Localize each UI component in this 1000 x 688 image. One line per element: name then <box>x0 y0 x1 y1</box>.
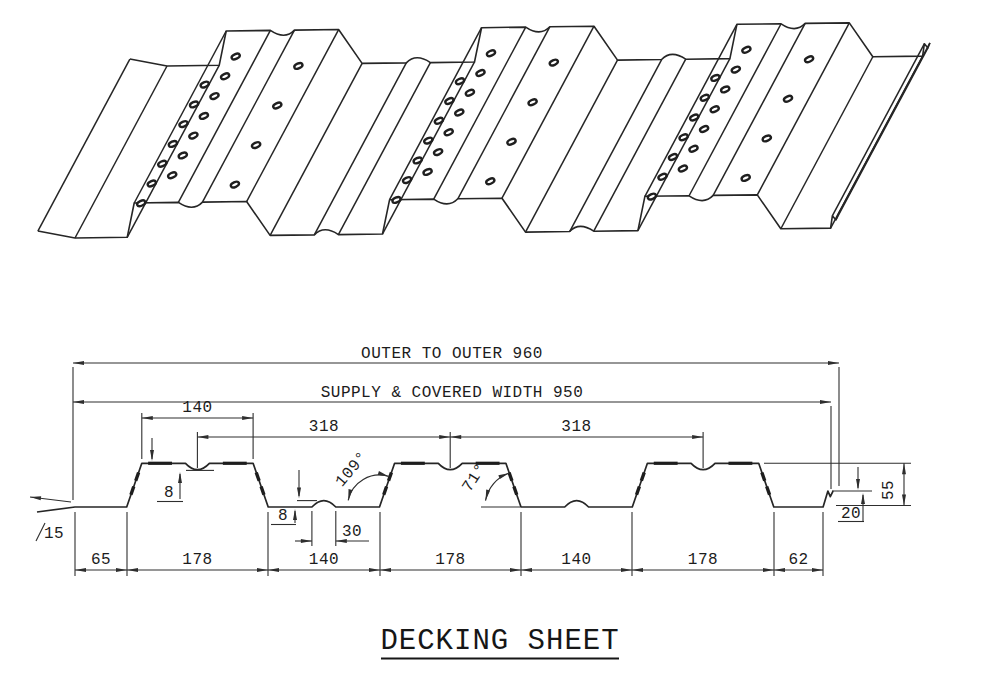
dim-chain-62: 62 <box>788 551 808 569</box>
dim-rib-top-140: 140 <box>182 399 212 417</box>
dim-chain-178b: 178 <box>435 551 465 569</box>
dim-chain-140a: 140 <box>309 551 339 569</box>
drawing-title-block: DECKING SHEET <box>380 625 619 659</box>
dim-outer-to-outer: OUTER TO OUTER 960 <box>361 345 543 363</box>
dim-supply-covered-width: SUPPLY & COVERED WIDTH 950 <box>321 384 584 402</box>
dim-depth-55: 55 <box>880 480 898 500</box>
dim-pitch-318-a: 318 <box>309 418 339 436</box>
dim-chain-178a: 178 <box>182 551 212 569</box>
drawing-title: DECKING SHEET <box>380 625 619 658</box>
cross-section-profile <box>37 463 833 512</box>
dim-chain-140b: 140 <box>561 551 591 569</box>
dim-pitch-318-b: 318 <box>561 418 591 436</box>
dim-dimple-depth-8: 8 <box>164 484 174 502</box>
dim-chain-178c: 178 <box>688 551 718 569</box>
drawing-sheet: OUTER TO OUTER 960 SUPPLY & COVERED WIDT… <box>0 0 1000 688</box>
dim-lip-right-20: 20 <box>841 505 861 523</box>
dim-lip-left-15: 15 <box>44 525 64 543</box>
dim-angle-109: 109° <box>332 448 372 491</box>
dim-chain-65: 65 <box>91 551 111 569</box>
dimension-labels: OUTER TO OUTER 960 SUPPLY & COVERED WIDT… <box>44 345 898 569</box>
decking-sheet-drawing: OUTER TO OUTER 960 SUPPLY & COVERED WIDT… <box>0 0 1000 688</box>
dim-bump-width-30: 30 <box>342 523 362 541</box>
dim-bump-height-8: 8 <box>278 507 288 525</box>
dim-angle-71: 71° <box>459 460 491 495</box>
isometric-view <box>38 23 930 238</box>
